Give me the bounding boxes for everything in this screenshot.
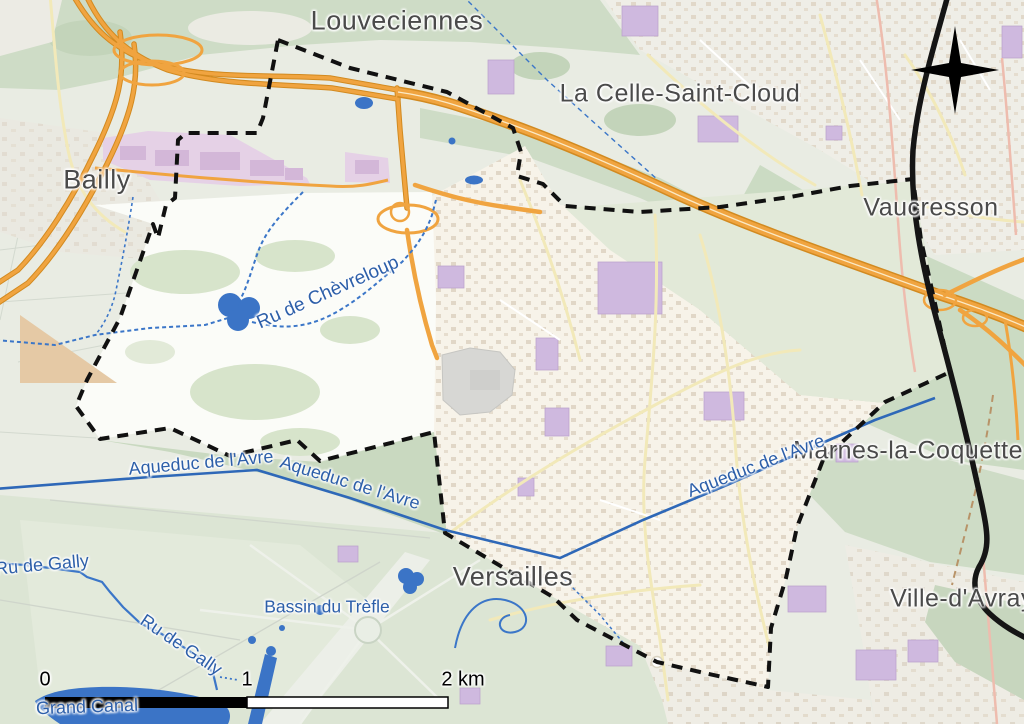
scale-bar [45, 697, 448, 708]
map-canvas: Louveciennes La Celle-Saint-Cloud Bailly… [0, 0, 1024, 724]
map-image [0, 0, 1024, 724]
